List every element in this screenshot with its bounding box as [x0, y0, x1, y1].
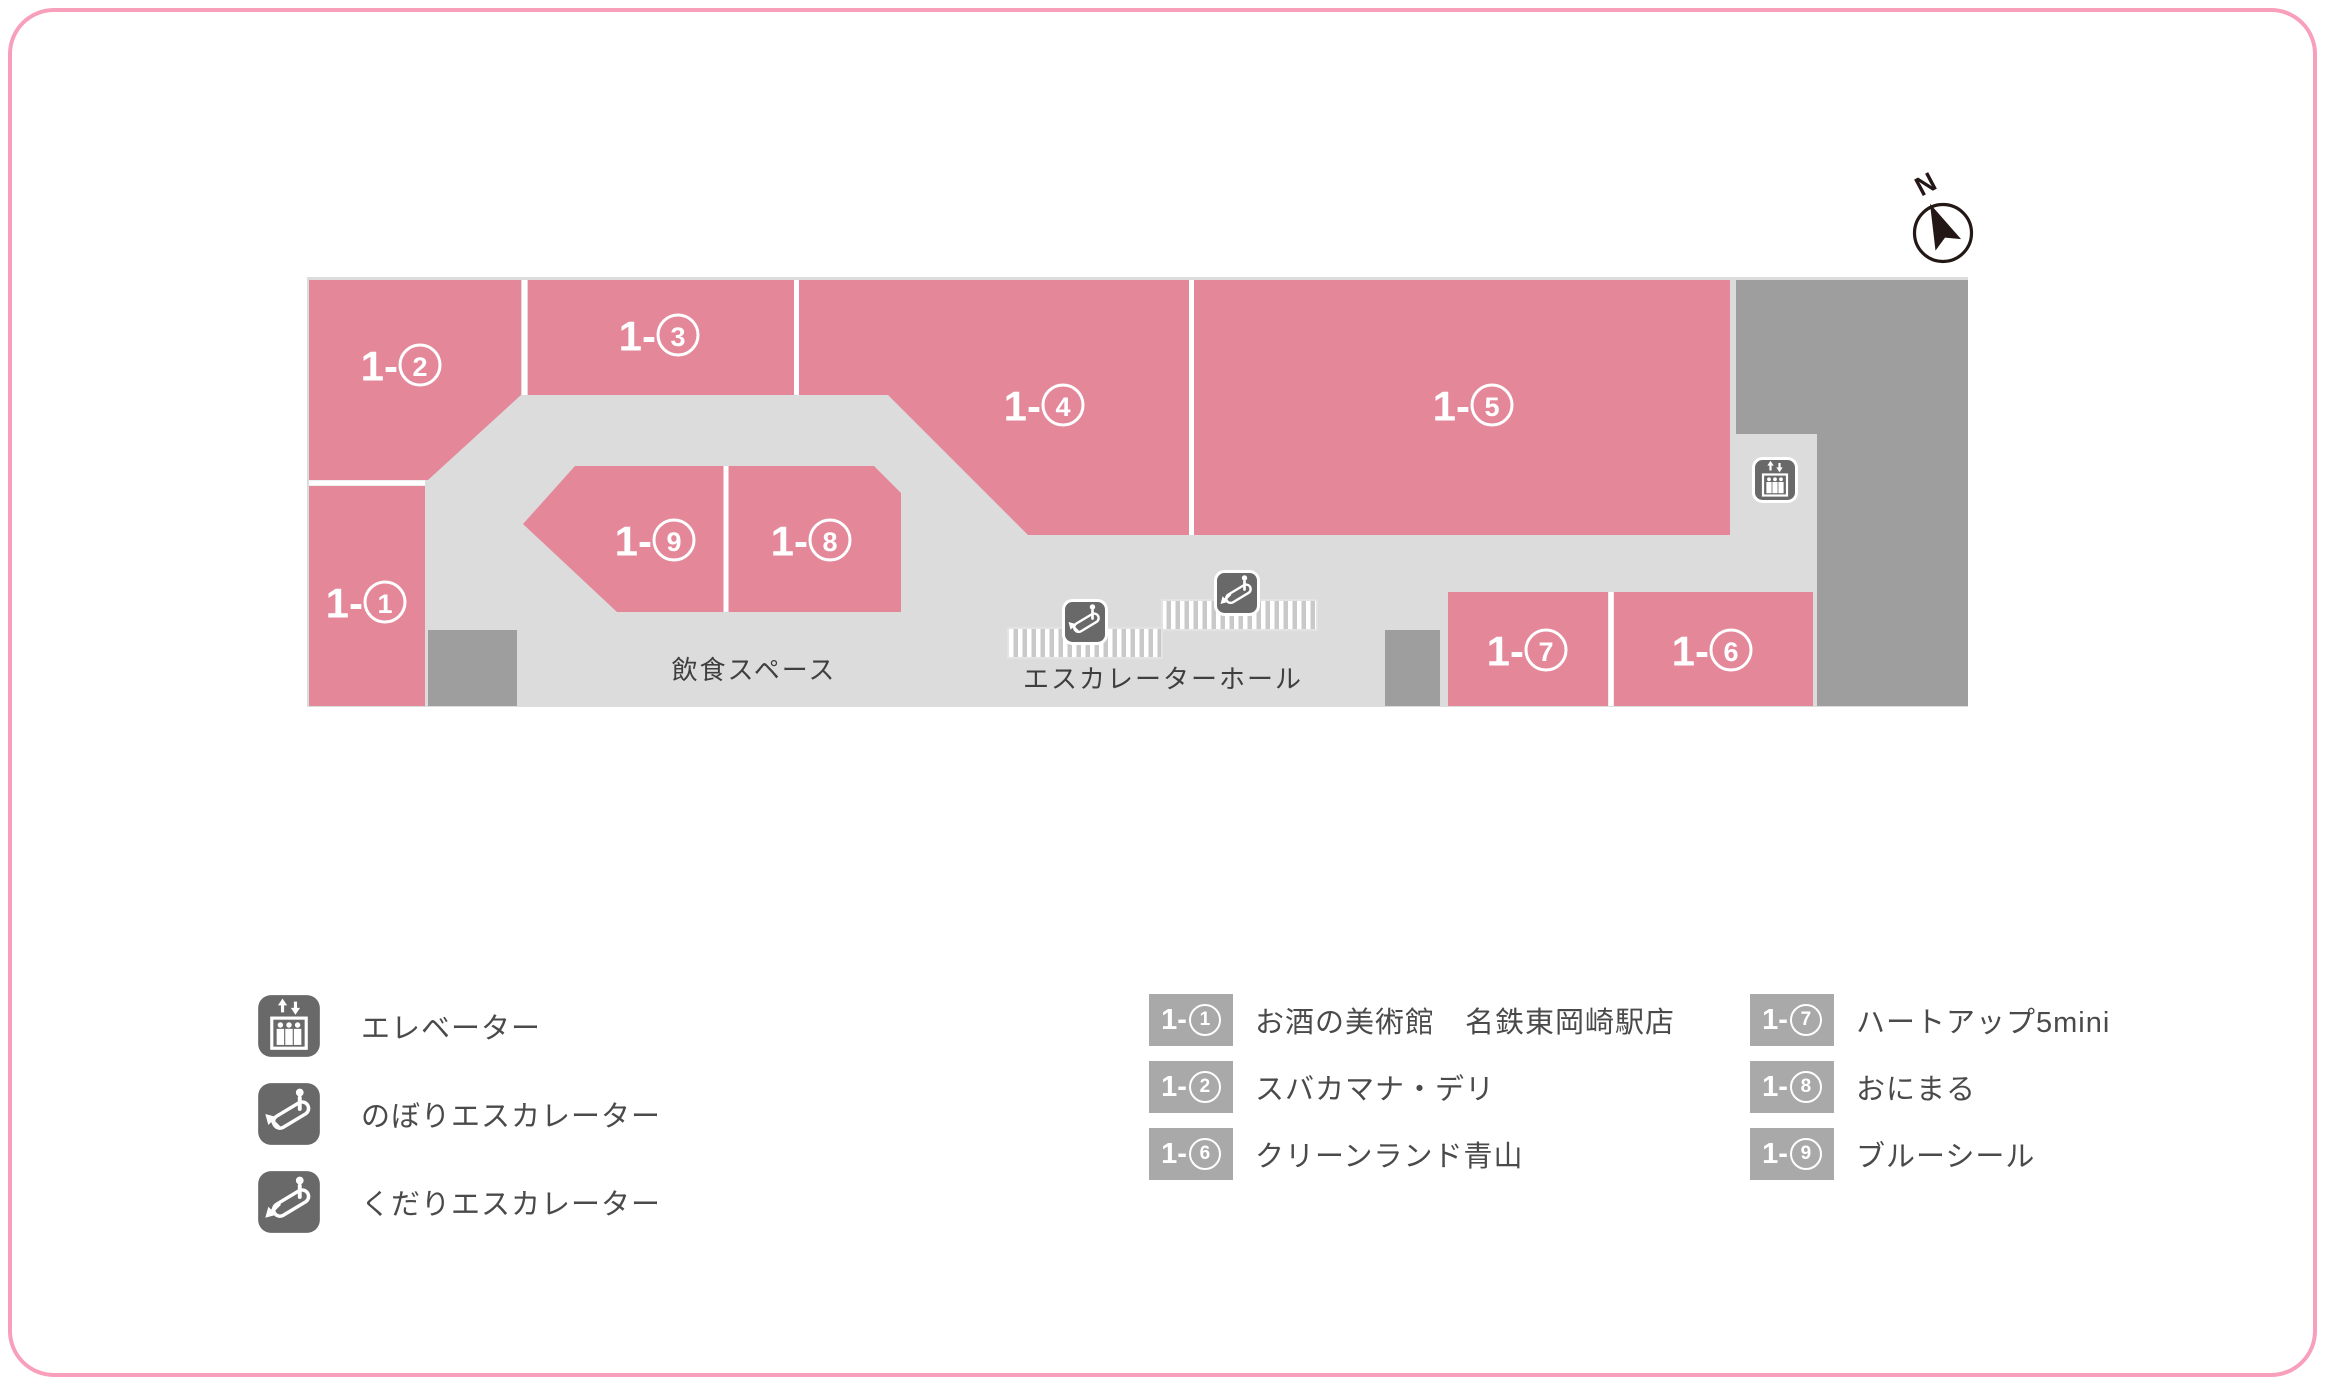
badge-prefix: 1-: [1762, 1138, 1788, 1171]
unit-number-badge: 1-7: [1750, 994, 1834, 1046]
unit-label-digit: 5: [1484, 392, 1499, 422]
unit-number-badge: 1-8: [1750, 1061, 1834, 1113]
badge-prefix: 1-: [1161, 1071, 1187, 1104]
map-unit-1-8: [728, 466, 901, 612]
store-directory-column-left: 1-1お酒の美術館 名鉄東岡崎駅店1-2スバカマナ・デリ1-6クリーンランド青山: [1149, 994, 1675, 1195]
directory-row-1-6: 1-6クリーンランド青山: [1149, 1128, 1675, 1180]
escalator-up-icon: [258, 1083, 320, 1145]
map-unit-1-6: [1614, 592, 1813, 706]
unit-number-badge: 1-2: [1149, 1061, 1233, 1113]
unit-number-badge: 1-1: [1149, 994, 1233, 1046]
unit-label-prefix: 1-: [619, 313, 656, 360]
unit-label-digit: 2: [412, 352, 427, 382]
compass: N: [1895, 160, 2005, 280]
unit-label-prefix: 1-: [1487, 628, 1524, 675]
escalator-hall-label: エスカレーターホール: [1023, 664, 1303, 694]
badge-circle-digit: 9: [1790, 1138, 1822, 1170]
legend-label: くだりエスカレーター: [361, 1181, 661, 1223]
unit-label-prefix: 1-: [1672, 628, 1709, 675]
unit-label-digit: 3: [670, 322, 685, 352]
unit-label-prefix: 1-: [361, 343, 398, 390]
unit-number-badge: 1-6: [1149, 1128, 1233, 1180]
legend-row: のぼりエスカレーター: [256, 1081, 661, 1147]
map-legend: エレベーターのぼりエスカレーターくだりエスカレーター: [256, 993, 661, 1257]
unit-label-prefix: 1-: [326, 580, 363, 627]
badge-prefix: 1-: [1762, 1004, 1788, 1037]
store-name: ブルーシール: [1856, 1133, 2035, 1175]
store-name: スバカマナ・デリ: [1255, 1066, 1495, 1108]
elevator-icon: [1754, 459, 1797, 502]
directory-row-1-7: 1-7ハートアップ5mini: [1750, 994, 2110, 1046]
dining-area-label: 飲食スペース: [672, 655, 837, 685]
directory-row-1-1: 1-1お酒の美術館 名鉄東岡崎駅店: [1149, 994, 1675, 1046]
legend-row: エレベーター: [256, 993, 661, 1059]
map-unit-1-7: [1448, 592, 1608, 706]
badge-circle-digit: 6: [1189, 1138, 1221, 1170]
badge-circle-digit: 8: [1790, 1071, 1822, 1103]
unit-label-digit: 7: [1538, 637, 1553, 667]
badge-prefix: 1-: [1161, 1138, 1187, 1171]
legend-label: エレベーター: [361, 1005, 541, 1047]
badge-circle-digit: 1: [1189, 1004, 1221, 1036]
badge-circle-digit: 7: [1790, 1004, 1822, 1036]
badge-circle-digit: 2: [1189, 1071, 1221, 1103]
unit-label-digit: 1: [377, 589, 392, 619]
backyard-block: [1385, 630, 1440, 706]
escalator-up-icon: [1064, 601, 1107, 644]
unit-label-digit: 4: [1055, 392, 1070, 422]
directory-row-1-8: 1-8おにまる: [1750, 1061, 2110, 1113]
directory-row-1-9: 1-9ブルーシール: [1750, 1128, 2110, 1180]
floor-map: 1-11-21-31-41-51-61-71-81-9飲食スペースエスカレーター…: [307, 277, 1968, 707]
map-unit-1-3: [528, 280, 795, 395]
unit-label-prefix: 1-: [771, 518, 808, 565]
store-directory-column-right: 1-7ハートアップ5mini1-8おにまる1-9ブルーシール: [1750, 994, 2110, 1195]
unit-label-prefix: 1-: [1004, 383, 1041, 430]
elevator-icon: [258, 995, 320, 1057]
escalator-down-icon: [258, 1171, 320, 1233]
store-name: クリーンランド青山: [1255, 1133, 1524, 1175]
unit-number-badge: 1-9: [1750, 1128, 1834, 1180]
store-name: おにまる: [1856, 1066, 1976, 1108]
unit-label-prefix: 1-: [615, 518, 652, 565]
unit-label-digit: 9: [666, 527, 681, 557]
escalator-down-icon: [1216, 572, 1259, 615]
unit-label-digit: 6: [1723, 637, 1738, 667]
badge-prefix: 1-: [1161, 1004, 1187, 1037]
unit-label-prefix: 1-: [1433, 383, 1470, 430]
store-name: お酒の美術館 名鉄東岡崎駅店: [1255, 999, 1675, 1041]
store-name: ハートアップ5mini: [1856, 999, 2110, 1041]
backyard-block: [428, 630, 517, 706]
unit-label-digit: 8: [822, 527, 837, 557]
directory-row-1-2: 1-2スバカマナ・デリ: [1149, 1061, 1675, 1113]
floor-map-page: 1-11-21-31-41-51-61-71-81-9飲食スペースエスカレーター…: [0, 0, 2325, 1385]
legend-label: のぼりエスカレーター: [361, 1093, 661, 1135]
compass-north-label: N: [1910, 167, 1941, 203]
badge-prefix: 1-: [1762, 1071, 1788, 1104]
legend-row: くだりエスカレーター: [256, 1169, 661, 1235]
